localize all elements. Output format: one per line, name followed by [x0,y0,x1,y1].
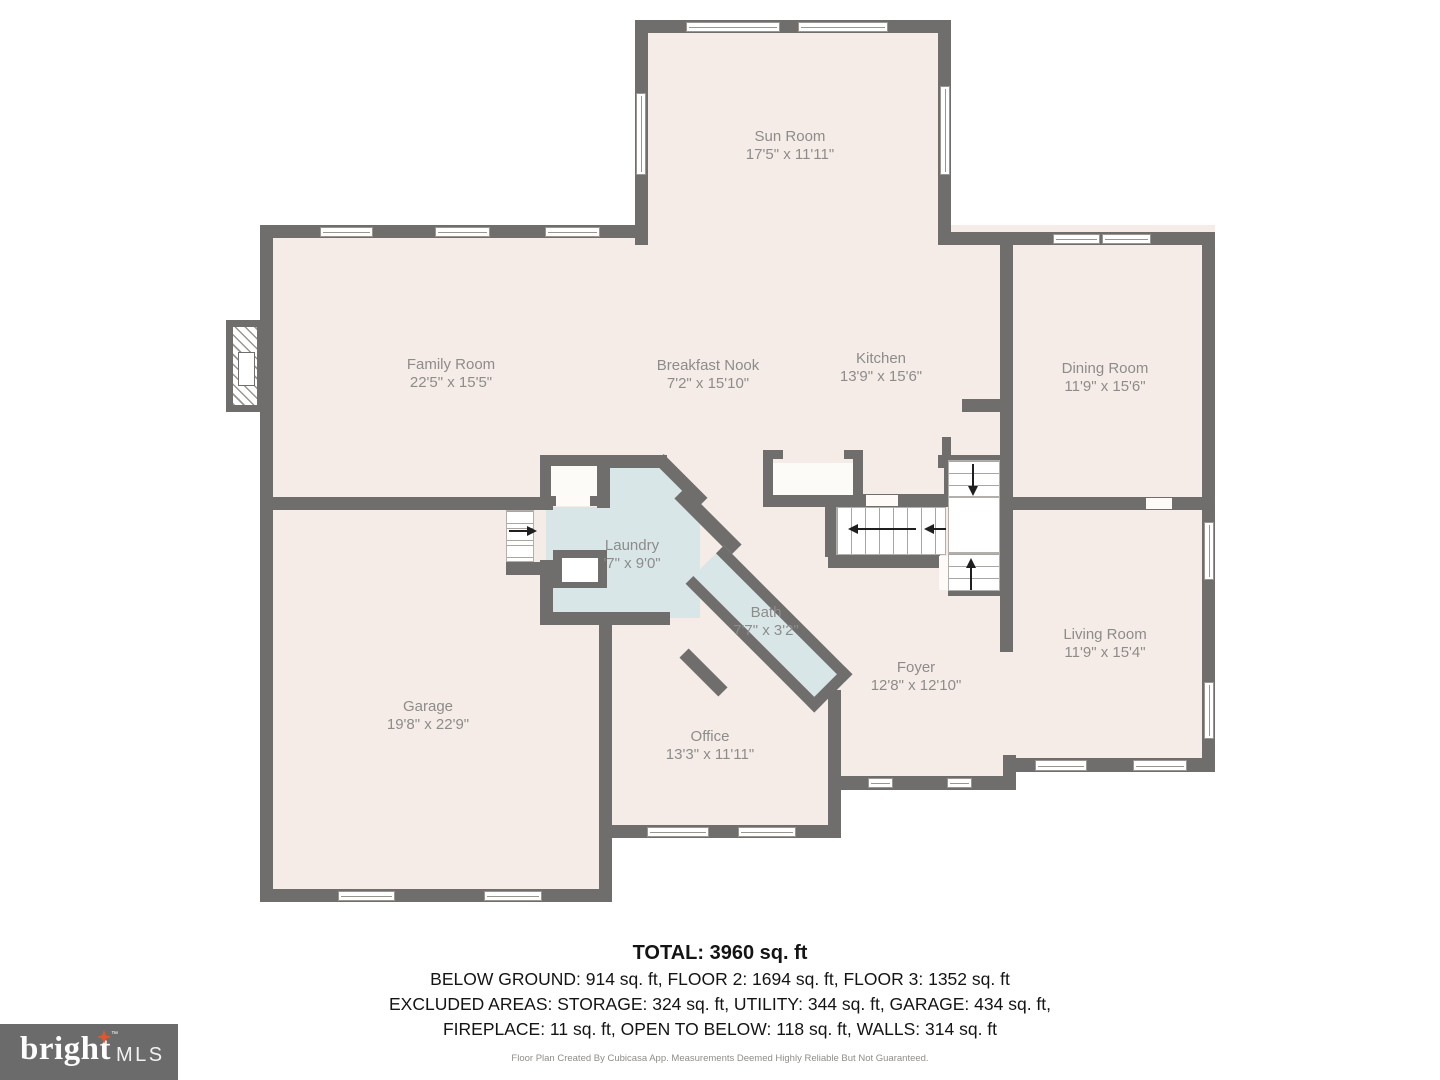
wall [1000,412,1013,652]
laundry-fixture-inner [562,558,598,582]
room-name: Dining Room [1062,360,1149,378]
window [1133,760,1187,771]
wall [763,458,773,503]
wall [853,458,863,503]
wall [836,776,1016,790]
window [868,778,893,788]
room-dims: 11'9" x 15'6" [1062,378,1149,396]
floors-area-text: BELOW GROUND: 914 sq. ft, FLOOR 2: 1694 … [0,969,1440,990]
door-opening [866,495,898,506]
arrow-line [934,528,946,530]
arrow-up-icon [966,558,976,568]
fireplace [226,320,264,412]
window [1053,234,1100,244]
logo-suffix-text: MLS [116,1044,165,1067]
room-label-sun-room: Sun Room 17'5" x 11'11" [746,128,834,164]
room-dims: 19'8" x 22'9" [387,716,469,734]
room-dims: 17'5" x 11'11" [746,146,834,164]
room-dims: 7'7" x 3'2" [733,622,799,640]
laundry-fixture [553,550,607,588]
logo-brand-text: bright [20,1031,111,1068]
staircase-landing [948,497,1000,553]
room-label-family-room: Family Room 22'5" x 15'5" [407,356,495,392]
window [636,93,646,175]
fireplace-box [238,352,255,386]
wall [260,889,612,902]
room-name: Kitchen [840,350,922,368]
arrow-line [858,528,916,530]
room-name: Office [666,728,754,746]
room-dims: 13'9" x 15'6" [840,368,922,386]
floor-plan: Sun Room 17'5" x 11'11" Family Room 22'5… [0,0,1440,1080]
closet-interior [551,466,597,496]
window [484,891,542,901]
arrow-left-icon [924,524,934,534]
pantry-interior [773,463,853,495]
window [738,827,796,837]
room-label-dining-room: Dining Room 11'9" x 15'6" [1062,360,1149,396]
room-name: Breakfast Nook [657,357,760,375]
arrow-line [970,568,972,590]
bright-mls-logo: bright ™ MLS [0,1024,178,1080]
room-dims: 12'8" x 12'10" [871,677,962,695]
window [686,22,780,32]
window [1102,234,1151,244]
wall [1003,755,1016,790]
room-label-office: Office 13'3" x 11'11" [666,728,754,764]
room-dims: 13'3" x 11'11" [666,746,754,764]
wall [948,591,1000,596]
window [320,227,373,237]
arrow-line [509,530,527,532]
trademark-symbol: ™ [111,1031,118,1038]
room-name: Foyer [871,659,962,677]
window [947,778,972,788]
window [338,891,395,901]
room-label-kitchen: Kitchen 13'9" x 15'6" [840,350,922,386]
wall [540,560,553,625]
area-summary: TOTAL: 3960 sq. ft BELOW GROUND: 914 sq.… [0,942,1440,1064]
window [647,827,709,837]
window [545,227,600,237]
door-opening [1146,498,1172,509]
room-label-garage: Garage 19'8" x 22'9" [387,698,469,734]
room-dims: 11'9" x 15'4" [1063,644,1146,662]
wall [1005,497,1202,510]
room-name: Living Room [1063,626,1146,644]
room-label-bath: Bath 7'7" x 3'2" [733,604,799,640]
wall [1202,232,1215,504]
window [435,227,490,237]
wall [635,20,951,33]
wall [1000,245,1013,412]
window [798,22,888,32]
wall [942,437,951,459]
room-name: Family Room [407,356,495,374]
room-name: Laundry [603,537,660,555]
room-dims: '7" x 9'0" [603,555,660,573]
wall [260,497,273,902]
room-dims: 7'2" x 15'10" [657,375,760,393]
window [1035,760,1087,771]
wall [597,463,610,508]
exterior-area [612,838,844,902]
arrow-down-icon [968,486,978,496]
room-dims: 22'5" x 15'5" [407,374,495,392]
room-name: Garage [387,698,469,716]
wall [828,690,841,825]
window [1204,522,1214,580]
room-label-living-room: Living Room 11'9" x 15'4" [1063,626,1146,662]
room-label-laundry: Laundry '7" x 9'0" [603,537,660,573]
wall [828,555,940,568]
wall [260,497,550,510]
room-name: Sun Room [746,128,834,146]
excluded-areas-text: EXCLUDED AREAS: STORAGE: 324 sq. ft, UTI… [0,994,1440,1015]
room-label-foyer: Foyer 12'8" x 12'10" [871,659,962,695]
excluded-areas-text-2: FIREPLACE: 11 sq. ft, OPEN TO BELOW: 118… [0,1019,1440,1040]
wall [825,505,836,557]
door-opening [939,556,948,590]
room-name: Bath [733,604,799,622]
disclaimer-text: Floor Plan Created By Cubicasa App. Meas… [0,1053,1440,1064]
arrow-right-icon [527,526,537,536]
exterior-area [841,790,1015,902]
window [940,86,950,175]
wall [599,612,612,902]
door-opening [556,496,590,506]
window [1204,682,1214,739]
room-label-breakfast-nook: Breakfast Nook 7'2" x 15'10" [657,357,760,393]
garage-steps [506,510,534,562]
arrow-line [972,464,974,486]
arrow-left-icon [848,524,858,534]
total-area-text: TOTAL: 3960 sq. ft [0,942,1440,965]
